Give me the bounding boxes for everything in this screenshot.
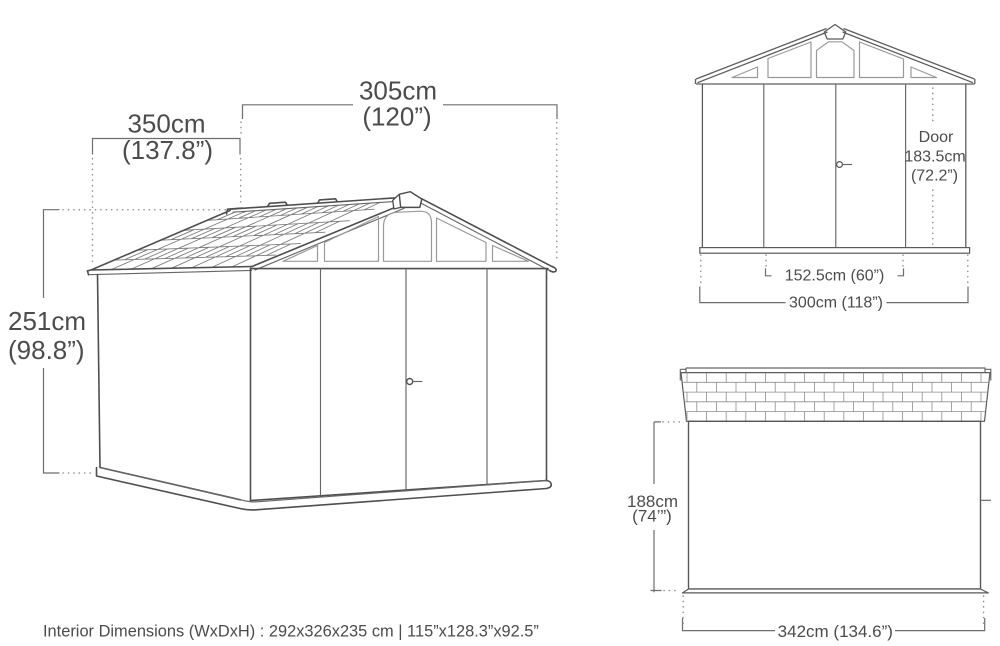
- svg-text:(72.2”): (72.2”): [911, 168, 958, 185]
- svg-text:(120”): (120”): [362, 102, 431, 132]
- svg-text:350cm: 350cm: [127, 109, 205, 139]
- svg-text:(74’”): (74’”): [632, 507, 672, 526]
- svg-text:251cm: 251cm: [8, 306, 86, 336]
- svg-text:(98.8”): (98.8”): [8, 335, 85, 365]
- svg-text:342cm (134.6”): 342cm (134.6”): [778, 622, 893, 641]
- svg-text:152.5cm (60”): 152.5cm (60”): [785, 267, 885, 284]
- svg-text:Interior Dimensions (WxDxH) :: Interior Dimensions (WxDxH) : 292x326x23…: [43, 623, 539, 641]
- svg-text:183.5cm: 183.5cm: [904, 149, 965, 166]
- svg-text:Door: Door: [919, 129, 954, 146]
- svg-text:300cm (118”): 300cm (118”): [789, 294, 883, 311]
- svg-text:(137.8”): (137.8”): [122, 135, 213, 165]
